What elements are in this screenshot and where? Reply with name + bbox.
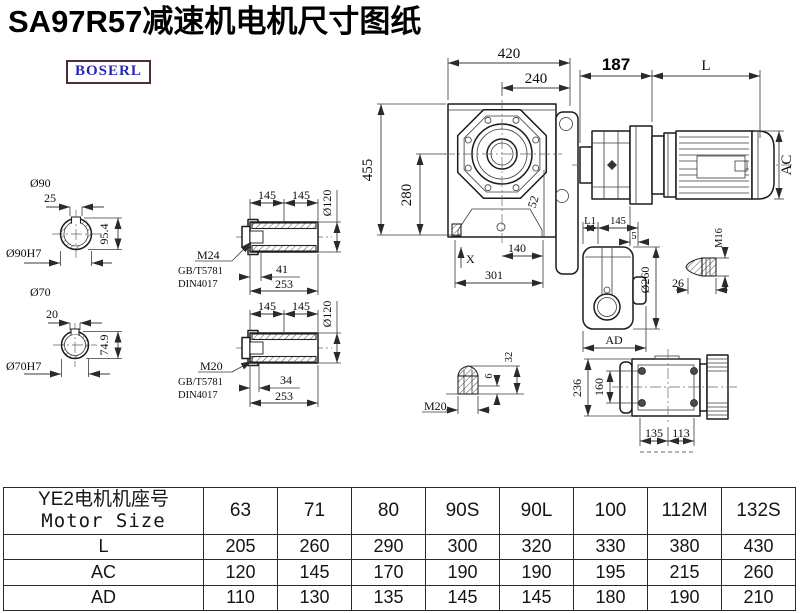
label-m24-thread: M24 [197, 248, 220, 262]
dim-240: 240 [525, 71, 548, 87]
dim-280: 280 [399, 184, 415, 207]
row-label-AD: AD [4, 585, 204, 610]
hollow-shaft-m20-view: 145 145 Ø120 M20 GB/T5781 DIN4017 34 253 [178, 299, 341, 407]
row-label-L: L [4, 534, 204, 559]
cell-AD-100: 180 [574, 585, 648, 610]
front-view-mount-plate [556, 112, 578, 274]
cell-L-100: 330 [574, 534, 648, 559]
dim-160: 160 [592, 378, 606, 396]
cell-L-63: 205 [204, 534, 278, 559]
dim-m24-dia: Ø120 [320, 190, 334, 217]
dim-m24-thread-len: 41 [276, 262, 288, 276]
size-col-63: 63 [204, 488, 278, 535]
gearbox-top-view: 236 160 135 113 [570, 349, 737, 452]
dim-side-5: 5 [631, 231, 636, 242]
dim-236: 236 [570, 379, 584, 397]
dim-side-145: 145 [610, 216, 626, 227]
cell-AC-90l: 190 [500, 560, 574, 585]
shaft-90-keyway [72, 217, 81, 224]
table-header-row: YE2电机机座号 Motor Size 63 71 80 90S 90L 100… [4, 488, 796, 535]
dim-m20-total: 253 [275, 389, 293, 403]
dim-plug-32: 32 [504, 352, 515, 363]
size-col-80: 80 [352, 488, 426, 535]
dim-shaft90-key: 25 [44, 191, 56, 205]
header-en: Motor Size [4, 510, 203, 532]
dim-26: 26 [672, 276, 684, 290]
dim-motor-dia-AC: AC [779, 155, 795, 176]
label-m24-std1: GB/T5781 [178, 266, 223, 277]
cell-AC-132s: 260 [722, 560, 796, 585]
dim-m20-seg1: 145 [258, 299, 276, 313]
dim-plug-6: 6 [484, 373, 495, 378]
dim-m20-thread-len: 34 [280, 373, 292, 387]
row-label-AC: AC [4, 560, 204, 585]
gearbox-side-view: L1 145 5 Ø260 AD [583, 206, 660, 352]
cell-L-112m: 380 [648, 534, 722, 559]
dim-301: 301 [485, 268, 503, 282]
cell-AC-71: 145 [278, 560, 352, 585]
hollow-shaft-m24-view: 145 145 Ø120 M24 GB/T5781 DIN4017 41 253 [178, 188, 341, 295]
label-plug-m20-thread: M20 [424, 399, 447, 413]
cell-AD-63: 110 [204, 585, 278, 610]
dim-m24-seg1: 145 [258, 188, 276, 202]
plug-m16-view: M16 26 [672, 228, 729, 294]
plug-m20-view: 6 32 M20 [422, 352, 524, 414]
label-m20-std2: DIN4017 [178, 390, 218, 401]
table-row-AD: AD 110 130 135 145 145 180 190 210 [4, 585, 796, 610]
header-cn: YE2电机机座号 [4, 489, 203, 510]
dim-260: Ø260 [638, 267, 652, 294]
cell-L-132s: 430 [722, 534, 796, 559]
size-col-71: 71 [278, 488, 352, 535]
motor-side-view: 187 L AC [572, 55, 795, 204]
label-m20-std1: GB/T5781 [178, 377, 223, 388]
cell-AC-90s: 190 [426, 560, 500, 585]
dim-shaft70-bore: Ø70H7 [6, 359, 41, 373]
cell-AC-80: 170 [352, 560, 426, 585]
label-x-marker: X [466, 252, 475, 266]
shaft-90-section-view: Ø90 25 95.4 Ø90H7 [6, 176, 122, 266]
cell-AC-63: 120 [204, 560, 278, 585]
dim-m24-seg2: 145 [292, 188, 310, 202]
dim-135: 135 [645, 426, 663, 440]
size-col-132s: 132S [722, 488, 796, 535]
dim-m20-dia: Ø120 [320, 301, 334, 328]
cell-AC-100: 195 [574, 560, 648, 585]
dim-113: 113 [672, 426, 690, 440]
dim-187: 187 [602, 55, 630, 74]
cell-L-71: 260 [278, 534, 352, 559]
dim-140: 140 [508, 241, 526, 255]
dim-motor-length-L: L [701, 58, 710, 74]
motor-size-table: YE2电机机座号 Motor Size 63 71 80 90S 90L 100… [3, 487, 796, 611]
size-col-90l: 90L [500, 488, 574, 535]
label-m24-std2: DIN4017 [178, 279, 218, 290]
dim-shaft90-height: 95.4 [97, 224, 111, 245]
cell-AD-112m: 190 [648, 585, 722, 610]
shaft-70-keyway [71, 329, 79, 335]
dim-455: 455 [360, 159, 376, 182]
cell-AD-90s: 145 [426, 585, 500, 610]
dim-shaft90-bore: Ø90H7 [6, 246, 41, 260]
label-m20-thread: M20 [200, 359, 223, 373]
cell-L-90l: 320 [500, 534, 574, 559]
cell-L-80: 290 [352, 534, 426, 559]
drawing-sheet: SA97R57减速机电机尺寸图纸 BOSERL Ø90 25 9 [0, 0, 800, 613]
dim-shaft70-height: 74.9 [97, 335, 111, 356]
label-m16-thread: M16 [714, 228, 725, 248]
cell-L-90s: 300 [426, 534, 500, 559]
table-header-motor-size: YE2电机机座号 Motor Size [4, 488, 204, 535]
dim-shaft70-key: 20 [46, 307, 58, 321]
size-col-112m: 112M [648, 488, 722, 535]
dim-L1: L1 [584, 216, 596, 227]
cell-AD-80: 135 [352, 585, 426, 610]
dim-420: 420 [498, 46, 521, 62]
table-row-AC: AC 120 145 170 190 190 195 215 260 [4, 560, 796, 585]
cell-AD-71: 130 [278, 585, 352, 610]
table-row-L: L 205 260 290 300 320 330 380 430 [4, 534, 796, 559]
dim-shaft90-diameter: Ø90 [30, 176, 51, 190]
cell-AC-112m: 215 [648, 560, 722, 585]
size-col-100: 100 [574, 488, 648, 535]
gearbox-front-view: 52 X 140 301 420 240 455 280 [360, 46, 578, 288]
cell-AD-90l: 145 [500, 585, 574, 610]
cell-AD-132s: 210 [722, 585, 796, 610]
shaft-70-section-view: Ø70 20 74.9 Ø70H7 [6, 285, 122, 377]
dim-m20-seg2: 145 [292, 299, 310, 313]
size-col-90s: 90S [426, 488, 500, 535]
dim-m24-total: 253 [275, 277, 293, 291]
dim-AD: AD [605, 333, 623, 347]
motor-fan-cover [752, 131, 774, 199]
dim-shaft70-diameter: Ø70 [30, 285, 51, 299]
